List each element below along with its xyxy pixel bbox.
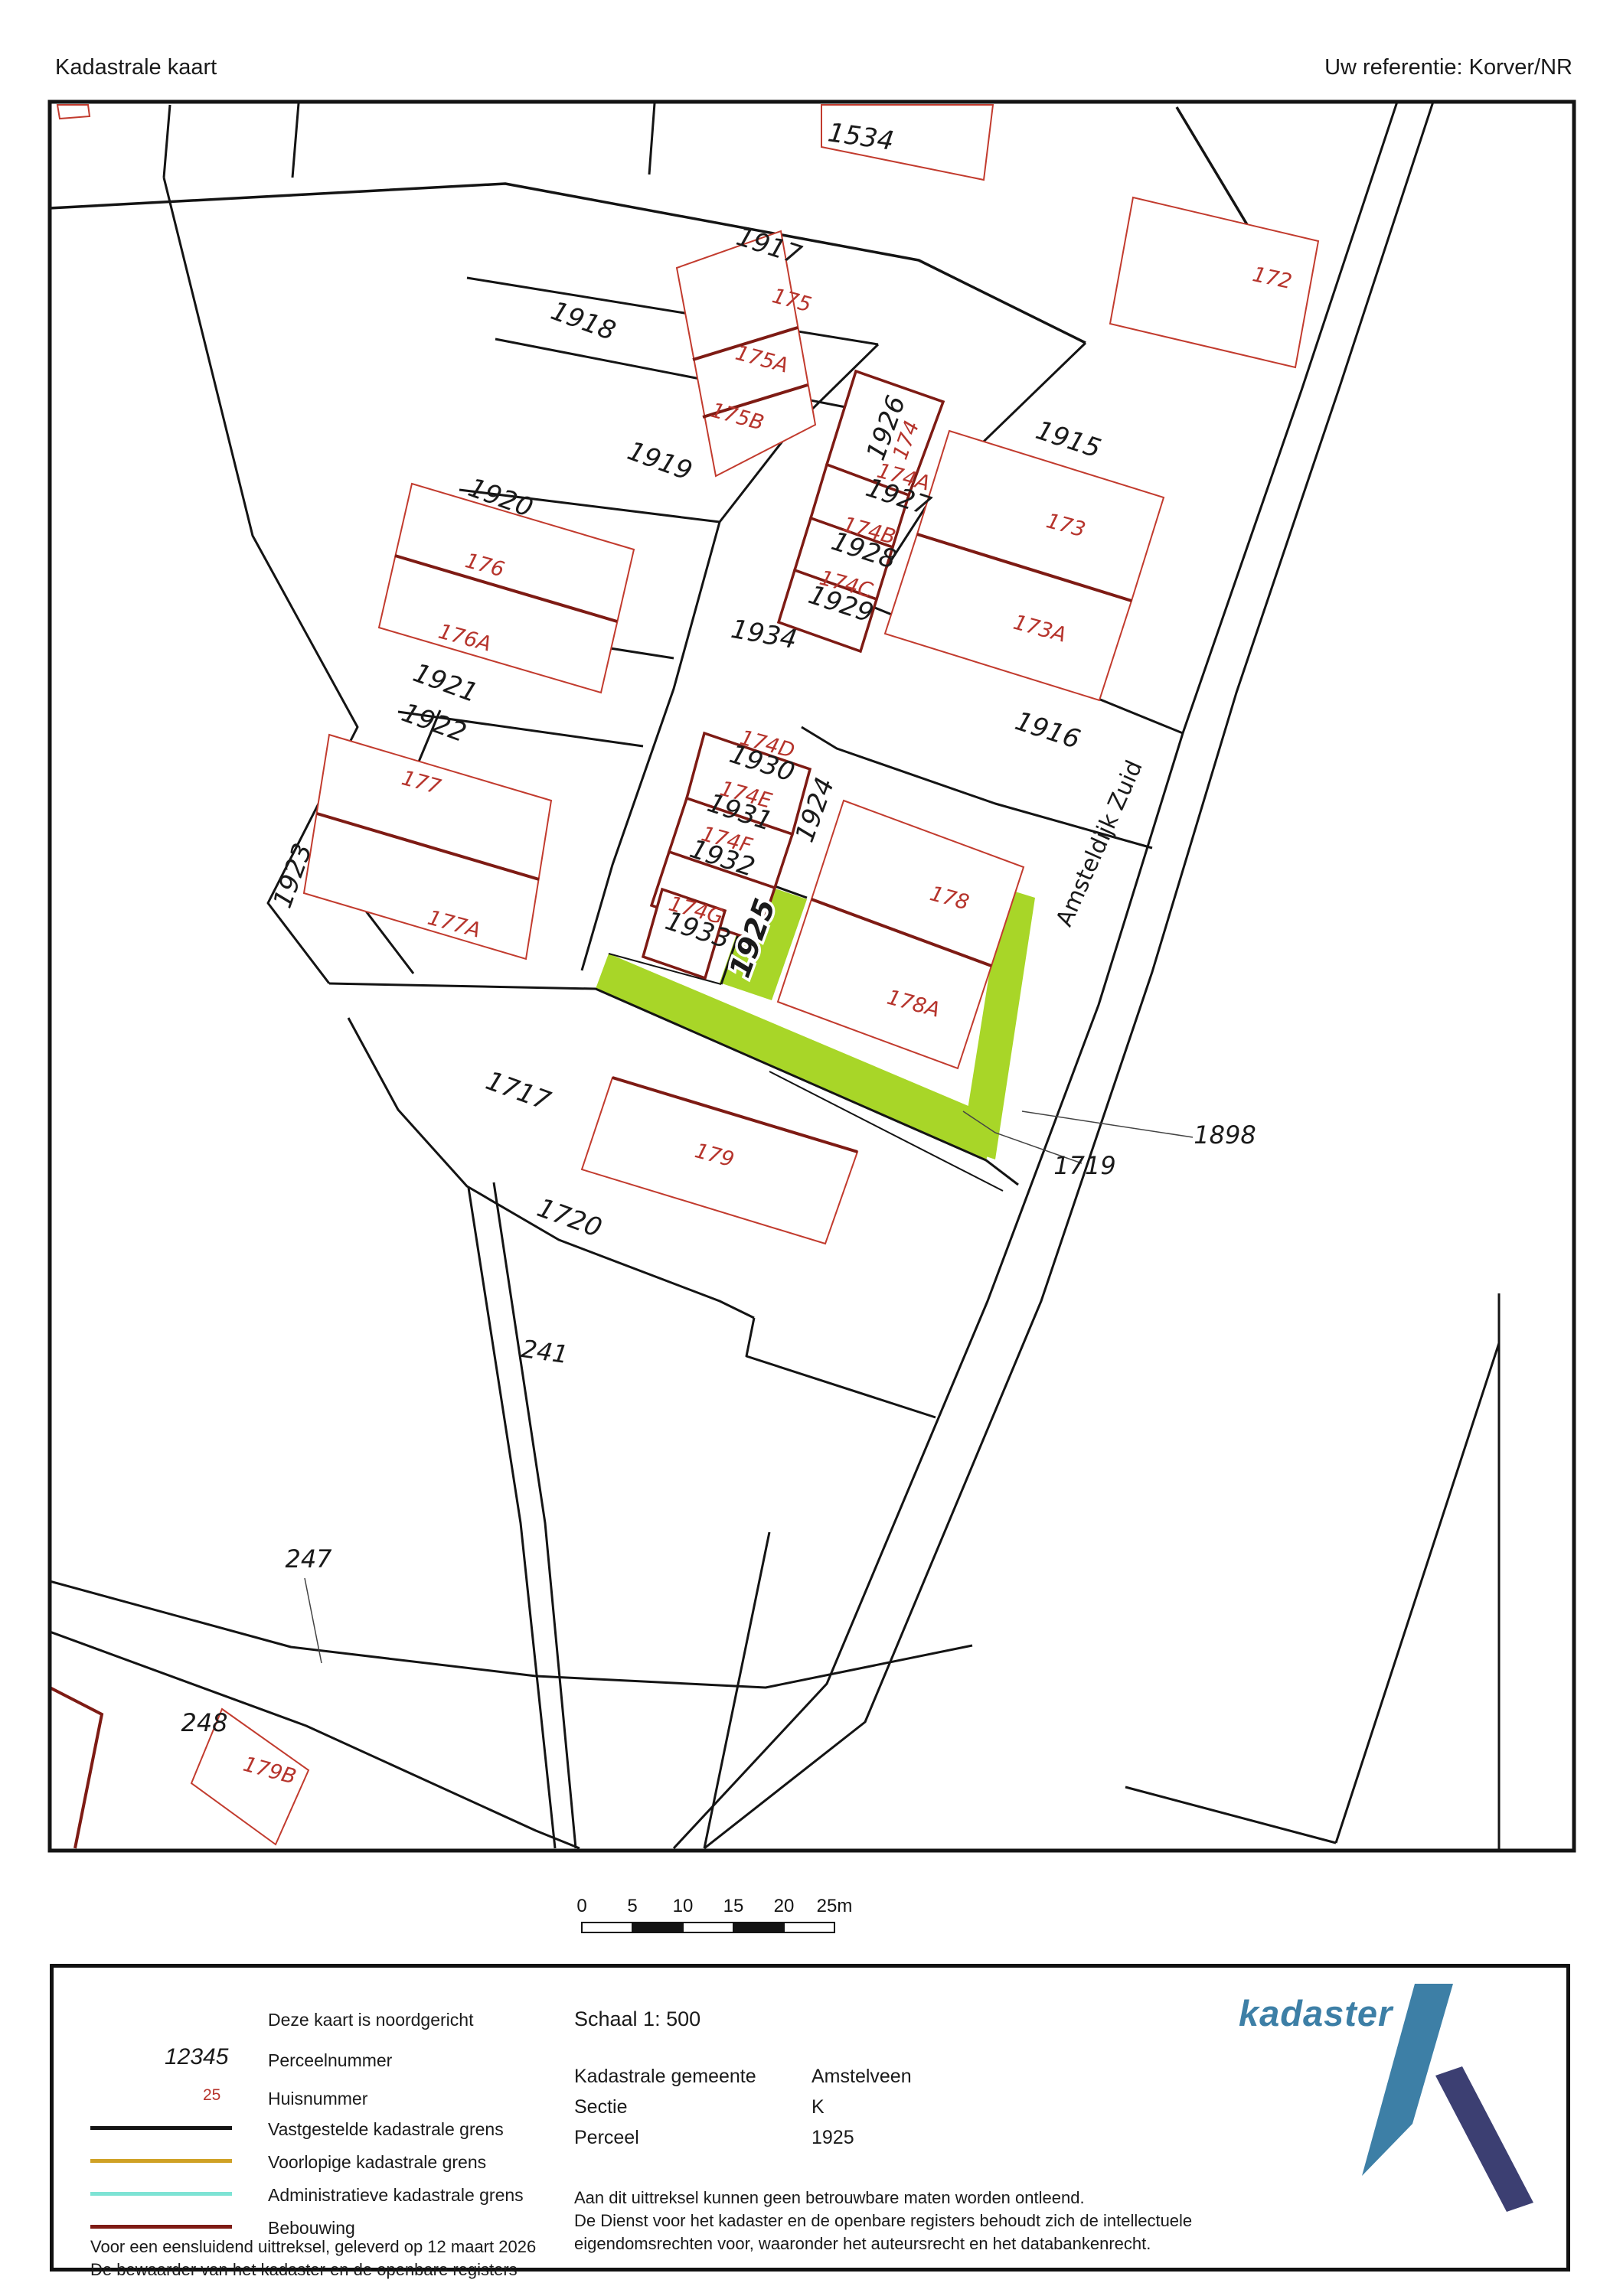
cadastral-map: 153419171751918175A175B19191920176176A19… [0, 0, 1623, 2296]
field-value-sectie: K [811, 2096, 825, 2118]
map-label-1720: 1720 [533, 1192, 606, 1244]
huisnummer-symbol: 25 [203, 2086, 220, 2105]
boundary-south-vert [704, 1532, 769, 1848]
scalebar-segment [733, 1923, 784, 1932]
map-label-1915: 1915 [1032, 415, 1105, 465]
disclaimer-line-2: De Dienst voor het kadaster en de openba… [574, 2211, 1192, 2231]
map-label-1918: 1918 [547, 295, 619, 347]
field-value-kadastrale-gemeente: Amstelveen [811, 2066, 912, 2088]
perceelnummer-symbol: 12345 [165, 2044, 228, 2070]
scalebar-segment [784, 1923, 834, 1932]
scalebar-tick-10: 10 [673, 1896, 694, 1916]
boundary-b1720-south [746, 1318, 936, 1417]
legend-line-vastgesteld [90, 2126, 232, 2130]
boundary-strip-241-east [494, 1182, 576, 1848]
footnote-1: Voor een eensluidend uittreksel, gelever… [90, 2237, 536, 2257]
scalebar-tick-15: 15 [723, 1896, 744, 1916]
boundary-strip-241-west [469, 1188, 555, 1848]
kadaster-logo-text: kadaster [1239, 1992, 1393, 2034]
scalebar-tick-0: 0 [576, 1896, 586, 1916]
boundary-south-diag-1 [50, 1581, 972, 1688]
huisnummer-label: Huisnummer [268, 2089, 367, 2109]
scalebar-segment [632, 1923, 683, 1932]
legend-label-bebouwing: Bebouwing [268, 2218, 355, 2239]
scalebar-tick-20: 20 [774, 1896, 795, 1916]
field-label-sectie: Sectie [574, 2096, 627, 2118]
map-label-1922: 1922 [397, 697, 470, 748]
legend-line-bebouwing [90, 2225, 232, 2229]
boundary-south-diag-2 [50, 1632, 580, 1848]
map-label-241: 241 [520, 1334, 570, 1369]
boundary-top-divider-1 [292, 103, 299, 178]
boundary-southeast-low [1125, 1787, 1336, 1843]
scalebar-segment [582, 1923, 632, 1932]
map-label-247: 247 [285, 1544, 332, 1574]
map-label-1898: 1898 [1194, 1120, 1256, 1150]
legend-box: Deze kaart is noordgericht 12345 Perceel… [50, 1964, 1570, 2272]
disclaimer-line-3: eigendomsrechten voor, waaronder het aut… [574, 2234, 1151, 2254]
field-value-perceel: 1925 [811, 2127, 854, 2149]
perceelnummer-label: Perceelnummer [268, 2050, 392, 2071]
field-label-kadastrale-gemeente: Kadastrale gemeente [574, 2066, 756, 2088]
field-label-perceel: Perceel [574, 2127, 639, 2149]
scale-bar: 0510152025m [576, 1896, 852, 1932]
map-label-248: 248 [181, 1708, 227, 1737]
map-label-1916: 1916 [1011, 706, 1084, 755]
scale-label: Schaal 1: 500 [574, 2007, 700, 2031]
boundary-top-divider-2 [649, 103, 655, 174]
scalebar-segment [683, 1923, 733, 1932]
accent-wall-sw [50, 1688, 102, 1848]
legend-label-voorlopig: Voorlopige kadastrale grens [268, 2152, 486, 2173]
legend-label-administratief: Administratieve kadastrale grens [268, 2185, 524, 2206]
legend-line-voorlopig [90, 2159, 232, 2163]
map-label-1719: 1719 [1053, 1151, 1115, 1180]
map-label-1717: 1717 [482, 1065, 554, 1117]
scalebar-tick-5: 5 [627, 1896, 637, 1916]
boundary-top-corner [164, 105, 170, 178]
bldg-corner-nw [57, 105, 90, 119]
legend-line-administratief [90, 2192, 232, 2196]
scalebar-tick-25m: 25m [817, 1896, 853, 1916]
legend-label-vastgesteld: Vastgestelde kadastrale grens [268, 2119, 504, 2140]
disclaimer-line-1: Aan dit uittreksel kunnen geen betrouwba… [574, 2188, 1085, 2208]
map-label-1919: 1919 [623, 435, 696, 487]
footnote-2: De bewaarder van het kadaster en de open… [90, 2260, 518, 2280]
north-note: Deze kaart is noordgericht [268, 2010, 473, 2030]
boundary-strip-1917s [467, 278, 878, 344]
boundary-east-diagonal [1336, 1343, 1499, 1843]
leader-1898 [1022, 1111, 1193, 1137]
